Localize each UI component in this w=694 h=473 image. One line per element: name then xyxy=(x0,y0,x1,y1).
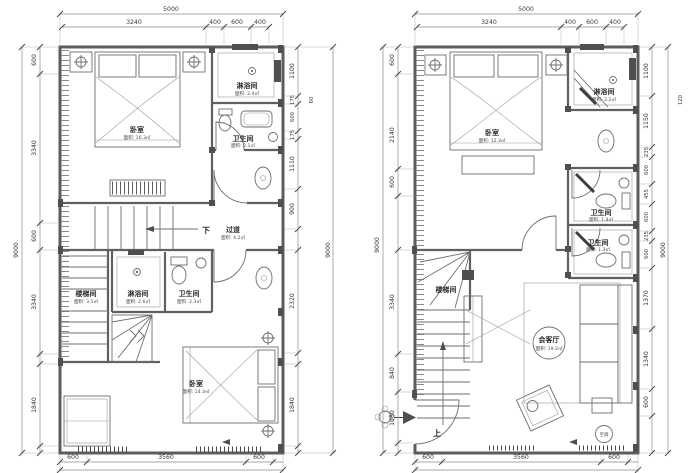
dim: 1080 xyxy=(389,410,396,426)
dim: 1840 xyxy=(31,397,38,413)
entry-arrow-icon xyxy=(394,411,416,424)
dim: 600 xyxy=(290,112,296,122)
room-label-shower-bottom: 淋浴间 xyxy=(128,289,149,298)
room-label-living: 会客厅 xyxy=(539,335,560,344)
room-label-bedroom-top: 卧室 xyxy=(130,125,144,134)
toilet-icon xyxy=(171,257,187,265)
room-area-wc1: 面积: 1.4㎡ xyxy=(589,216,614,223)
room-label-stairwell: 楼梯间 xyxy=(436,285,457,294)
dim-top-total: 5000 xyxy=(518,6,534,13)
ceiling-lamp-icon xyxy=(549,58,563,72)
dim-left-total: 9000 xyxy=(374,237,381,253)
shower-head-icon xyxy=(274,60,281,82)
sink-round-icon xyxy=(269,133,278,142)
dim: 600 xyxy=(644,165,650,175)
dim: 600 xyxy=(389,176,396,188)
dim: 1340 xyxy=(643,351,650,367)
dim-right-small: 120 xyxy=(678,95,684,105)
room-area-stairwell: 面积: 3.1㎡ xyxy=(74,298,99,305)
room-area-wc-bottom: 面积: 2.3㎡ xyxy=(177,298,202,305)
room-area-wc-top: 面积: 2.1㎡ xyxy=(231,142,256,149)
dim-right-small: 60 xyxy=(309,97,315,104)
right-plan: 空调 卧室 面积: 12.3㎡ xyxy=(374,6,684,473)
dim: 1100 xyxy=(643,63,650,79)
door-arc xyxy=(522,216,556,250)
wall-piers xyxy=(58,45,283,452)
pillow xyxy=(454,55,494,77)
dim: 1370 xyxy=(643,290,650,306)
dim: 3240 xyxy=(481,19,497,26)
lintel xyxy=(232,44,258,50)
direction-arrow xyxy=(569,439,577,445)
dim: 3340 xyxy=(31,294,38,310)
dim-right-total: 9000 xyxy=(660,242,667,258)
dim: 235 xyxy=(644,147,650,157)
room-area-shower-top: 面积: 2.4㎡ xyxy=(235,90,260,97)
dim: 600 xyxy=(422,454,434,461)
wc-bottom-fixtures xyxy=(171,257,206,284)
dim-right-total: 9000 xyxy=(325,242,332,258)
ceiling-lamp-icon xyxy=(74,55,88,69)
room-label-bedroom: 卧室 xyxy=(485,128,499,137)
dim: 3240 xyxy=(126,19,142,26)
room-area-corridor: 面积: 4.2㎡ xyxy=(221,234,246,241)
dim: 1840 xyxy=(289,397,296,413)
left-plan: 卧室 面积: 16.3㎡ 淋浴间 面积: 2.4㎡ 卫生间 面积: 2.1㎡ 下… xyxy=(13,6,336,473)
right-plan-inner-walls xyxy=(415,47,638,310)
room-label-wc-top: 卫生间 xyxy=(233,134,254,143)
svg-text:空调: 空调 xyxy=(600,431,609,438)
sink-round-icon xyxy=(196,258,206,268)
dim: 600 xyxy=(643,396,650,408)
shower-head-icon xyxy=(629,58,636,80)
washbasin-icon xyxy=(256,267,272,289)
sofa-icon xyxy=(580,285,632,403)
stairs-up-icon xyxy=(417,310,470,425)
room-label-stairwell: 楼梯间 xyxy=(76,289,97,298)
dim: 600 xyxy=(608,454,620,461)
washbasin-icon xyxy=(255,167,271,189)
dim: 3340 xyxy=(31,140,38,156)
shower-room-top xyxy=(218,53,281,97)
room-area-shower-bottom: 面积: 2.6㎡ xyxy=(126,298,151,305)
dim: 2140 xyxy=(389,127,396,143)
direction-arrow xyxy=(440,341,446,350)
dim: 1110 xyxy=(289,156,296,172)
room-area-bedroom: 面积: 12.3㎡ xyxy=(478,137,505,144)
tv-console-icon xyxy=(464,296,530,362)
dim: 600 xyxy=(31,230,38,242)
toilet-icon xyxy=(622,252,630,268)
dim: 175 xyxy=(290,130,296,140)
pillow xyxy=(258,387,275,421)
shower-room-bottom xyxy=(117,250,160,307)
dim: 1100 xyxy=(289,63,296,79)
direction-arrow xyxy=(222,439,230,445)
ceiling-lamp-icon xyxy=(261,424,275,438)
dresser-icon xyxy=(462,156,534,174)
room-label-wc2: 卫生间 xyxy=(588,238,609,247)
dim: 600 xyxy=(67,454,79,461)
winder-stairs-icon xyxy=(418,252,474,308)
washbasin-icon xyxy=(598,130,614,152)
dim: 1150 xyxy=(643,113,650,129)
stairs-down-icon xyxy=(95,206,198,249)
dim: 3560 xyxy=(158,454,174,461)
direction-arrow xyxy=(145,226,154,232)
dim-top-total: 5000 xyxy=(163,6,179,13)
ceiling-lamp-icon xyxy=(261,331,275,345)
armchair-icon xyxy=(517,385,564,431)
room-area-wc2: 面积: 1.3㎡ xyxy=(586,246,611,253)
ac-badge: 空调 xyxy=(596,426,613,443)
room-label-shower: 淋浴间 xyxy=(594,87,615,96)
dim: 400 xyxy=(564,19,576,26)
floorplan-page: 卧室 面积: 16.3㎡ 淋浴间 面积: 2.4㎡ 卫生间 面积: 2.1㎡ 下… xyxy=(0,0,694,473)
dim: 175 xyxy=(290,95,296,105)
dim: 600 xyxy=(231,19,243,26)
dim: 3340 xyxy=(389,294,396,310)
pillow xyxy=(258,350,275,384)
lintel xyxy=(580,44,604,50)
room-label-wc-bottom: 卫生间 xyxy=(179,289,200,298)
room-label-bedroom-bottom: 卧室 xyxy=(189,379,203,388)
room-label-shower-top: 淋浴间 xyxy=(237,81,258,90)
stairs-down-label: 下 xyxy=(202,226,210,235)
dim: 400 xyxy=(254,19,266,26)
dim: 235 xyxy=(644,231,650,241)
dim: 455 xyxy=(644,189,650,199)
door-arc xyxy=(214,250,246,282)
door-arc xyxy=(214,170,247,203)
pillow xyxy=(498,55,538,77)
dim: 2320 xyxy=(289,293,296,309)
shower-head-icon xyxy=(128,250,144,255)
dim: 600 xyxy=(586,19,598,26)
room-area-bedroom-bottom: 面积: 14.3㎡ xyxy=(182,388,209,395)
dim: 3560 xyxy=(513,454,529,461)
toilet-icon xyxy=(622,193,630,209)
ceiling-lamp-icon xyxy=(187,55,201,69)
room-label-wc1: 卫生间 xyxy=(591,208,612,217)
stairs-up-label: 上 xyxy=(433,428,441,438)
room-area-bedroom-top: 面积: 16.3㎡ xyxy=(123,134,150,141)
dim: 400 xyxy=(209,19,221,26)
landing-block xyxy=(462,270,474,280)
door-slab xyxy=(576,174,594,192)
sink-round-icon xyxy=(619,235,629,245)
ceiling-lamp-icon xyxy=(428,58,442,72)
side-table-icon xyxy=(592,398,612,413)
dim: 840 xyxy=(389,367,396,379)
pillow xyxy=(139,55,176,77)
floor-plan-canvas: 卧室 面积: 16.3㎡ 淋浴间 面积: 2.4㎡ 卫生间 面积: 2.1㎡ 下… xyxy=(0,0,694,473)
dim: 600 xyxy=(644,212,650,222)
dim-left-total: 9000 xyxy=(13,242,20,258)
pillow xyxy=(99,55,136,77)
dim: 600 xyxy=(389,54,396,66)
winder-stairs-icon xyxy=(112,315,152,362)
toilet-icon xyxy=(219,109,232,115)
room-area-living: 面积: 19.2㎡ xyxy=(535,345,562,352)
dim: 600 xyxy=(253,454,265,461)
dim: 900 xyxy=(289,203,296,215)
dim: 600 xyxy=(644,249,650,259)
room-label-corridor: 过道 xyxy=(226,225,240,234)
room-area-shower: 面积: 2.2㎡ xyxy=(592,96,617,103)
dim: 600 xyxy=(31,54,38,66)
dim: 400 xyxy=(609,19,621,26)
stair-chevron xyxy=(130,330,144,342)
wardrobe-icon xyxy=(64,396,110,446)
sink-round-icon xyxy=(619,178,629,188)
